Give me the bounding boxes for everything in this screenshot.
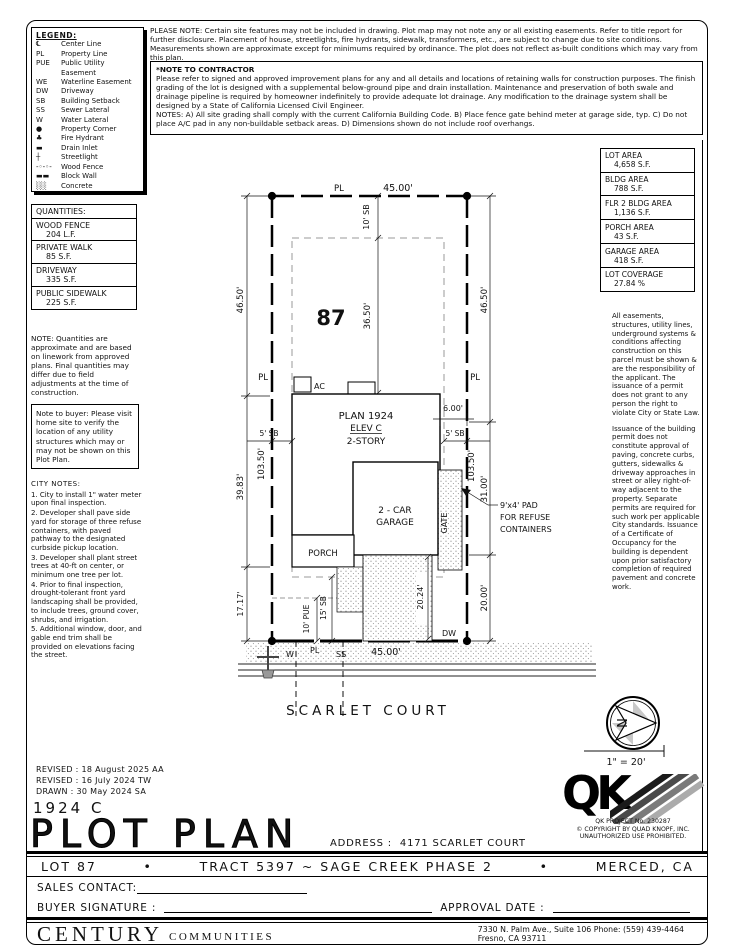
quantity-row: PRIVATE WALK85 S.F. (31, 240, 137, 264)
quantities-table: QUANTITIES: WOOD FENCE204 L.F. PRIVATE W… (31, 205, 137, 310)
ac-pad (294, 377, 311, 392)
footer-hairline (27, 876, 708, 877)
dim-street-sb: 15' SB (319, 596, 328, 620)
area-row: BLDG AREA788 S.F. (600, 172, 695, 197)
city-notes: CITY NOTES: 1. City to install 1" water … (31, 480, 143, 661)
plot-plan-page: LEGEND: ℄Center Line PLProperty Line PUE… (0, 0, 732, 948)
dim-left-mid: 39.83' (236, 474, 246, 501)
sales-contact-blank (137, 883, 307, 894)
revision-line: REVISED : 16 July 2024 TW (36, 775, 286, 786)
city-notes-title: CITY NOTES: (31, 480, 143, 489)
qk-copyright-line2: UNAUTHORIZED USE PROHIBITED. (558, 833, 708, 841)
legend-item: ℄Center Line (36, 40, 139, 49)
centerline-symbol: ℄ (36, 40, 61, 49)
legend-item: PLProperty Line (36, 50, 139, 59)
city-note-item: 4. Prior to final inspection, drought-to… (31, 581, 143, 625)
plan-story: 2-STORY (347, 437, 386, 447)
sales-contact-label: SALES CONTACT: (37, 882, 137, 894)
city-note-item: 3. Developer shall plant street trees at… (31, 554, 143, 580)
area-row: GARAGE AREA418 S.F. (600, 243, 695, 268)
legend-item: ░░Concrete (36, 182, 139, 191)
dim-right-total: 103.50' (467, 450, 477, 482)
block-wall-symbol: ▬▬ (36, 172, 61, 181)
qk-copyright-line1: © COPYRIGHT BY QUAD KNOPF, INC. (558, 826, 708, 834)
qk-copyright: QK PROJECT No. 230287 © COPYRIGHT BY QUA… (558, 818, 708, 841)
front-setback-dim (375, 193, 381, 396)
driveway-symbol: DW (36, 87, 61, 96)
legend-item: WEWaterline Easement (36, 78, 139, 87)
permit-note-paragraph: Issuance of the building permit does not… (612, 425, 700, 592)
permit-notes: All easements, structures, utility lines… (612, 312, 700, 599)
concrete-symbol: ░░ (36, 182, 61, 191)
buyer-signature-label: BUYER SIGNATURE : (37, 902, 156, 914)
legend-item: SSSewer Lateral (36, 106, 139, 115)
legend-item: WWater Lateral (36, 116, 139, 125)
gate-label: GATE (440, 513, 449, 534)
plan-name: PLAN 1924 (339, 411, 394, 422)
builder-name: CENTURY (37, 922, 163, 947)
ac-label: AC (314, 382, 325, 391)
please-note-text: PLEASE NOTE: Certain site features may n… (150, 27, 703, 63)
legend-item: DWDriveway (36, 87, 139, 96)
area-row: LOT AREA4,658 S.F. (600, 148, 695, 173)
builder-address-line1: 7330 N. Palm Ave., Suite 106 Phone: (559… (478, 925, 684, 935)
area-row: PORCH AREA43 S.F. (600, 219, 695, 244)
quantity-row: DRIVEWAY335 S.F. (31, 263, 137, 287)
refuse-label-1: 9'x4' PAD (500, 501, 538, 510)
legend-item: ┼Streetlight (36, 153, 139, 162)
dim-pue: 10' PUE (302, 604, 311, 633)
note-to-contractor-box: *NOTE TO CONTRACTOR Please refer to sign… (150, 61, 703, 135)
builder-address-line2: Fresno, CA 93711 (478, 934, 684, 944)
pl-label-bottom: PL (310, 646, 320, 655)
revision-line: REVISED : 18 August 2025 AA (36, 764, 286, 775)
address-label: ADDRESS : (330, 838, 392, 849)
dim-driveway: 20.24' (416, 584, 425, 609)
dim-front-sb: 10' SB (362, 204, 371, 230)
north-arrow-and-scale: N 1" = 20' (580, 690, 710, 775)
lot-label: LOT 87 (41, 859, 97, 874)
dim-bottom-width: 45.00' (371, 647, 401, 658)
property-corner (268, 192, 275, 199)
site-plan-drawing: 46.50' 39.83' 17.17' 103.50' 46.50' 31.0… (230, 140, 602, 720)
address-value: 4171 SCARLET COURT (400, 838, 526, 849)
left-dimension-chain (241, 193, 270, 644)
sheet-title-text: PLOT PLAN (30, 812, 300, 856)
legend-title: LEGEND: (36, 31, 139, 40)
tract-label: TRACT 5397 ~ SAGE CREEK PHASE 2 (200, 859, 493, 874)
dim-side-offset: 6.00' (443, 404, 463, 413)
legend-item: ●Property Corner (36, 125, 139, 134)
contractor-note-list: NOTES: A) All site grading shall comply … (156, 110, 697, 128)
property-corner (463, 637, 470, 644)
wood-fence-symbol: -◦-◦- (36, 163, 61, 172)
builder-row: CENTURY COMMUNITIES 7330 N. Palm Ave., S… (27, 923, 708, 945)
garage-label-2: GARAGE (376, 518, 414, 528)
dim-to-house: 36.50' (363, 303, 373, 330)
property-line-symbol: PL (36, 50, 61, 59)
legend-item: SBBuilding Setback (36, 97, 139, 106)
garage-label-1: 2 - CAR (378, 506, 411, 516)
approval-date-blank (553, 902, 691, 913)
private-walk (337, 567, 363, 612)
plan-elev: ELEV C (350, 424, 382, 434)
bullet: • (540, 859, 549, 874)
approval-date-label: APPROVAL DATE : (440, 902, 544, 914)
quantities-note: NOTE: Quantities are approximate and are… (31, 334, 139, 397)
street-name: SCARLET COURT (286, 703, 450, 719)
legend-item: ♣Fire Hydrant (36, 134, 139, 143)
driveway-label: DW (442, 629, 456, 638)
dim-sb-right: 5' SB (445, 429, 464, 438)
contractor-note-title: *NOTE TO CONTRACTOR (156, 65, 697, 74)
lot-tract-row: LOT 87 • TRACT 5397 ~ SAGE CREEK PHASE 2… (27, 857, 708, 876)
city-note-item: 2. Developer shall pave side yard for st… (31, 509, 143, 553)
house-bump (348, 382, 375, 394)
pl-label-top: PL (334, 184, 344, 194)
area-row: LOT COVERAGE27.84 % (600, 267, 695, 292)
legend-item: -◦-◦-Wood Fence (36, 163, 139, 172)
legend-item: ▬▬Block Wall (36, 172, 139, 181)
buyer-note-box: Note to buyer: Please visit home site to… (31, 404, 139, 469)
builder-address: 7330 N. Palm Ave., Suite 106 Phone: (559… (478, 925, 698, 944)
sewer-lateral-label: SS (336, 650, 346, 659)
qk-project-number: QK PROJECT No. 230287 (558, 818, 708, 826)
right-dimension-chain (469, 193, 496, 644)
sidewalk-concrete (238, 643, 596, 676)
dim-right-lower: 20.00' (480, 585, 490, 612)
pue-symbol: PUE (36, 59, 61, 78)
legend-item: PUEPublic Utility Easement (36, 59, 139, 78)
qk-logo-block: QK QK PROJECT No. 230287 © COPYRIGHT BY … (558, 774, 708, 848)
dim-right-upper: 46.50' (480, 287, 490, 314)
quantity-row: WOOD FENCE204 L.F. (31, 218, 137, 242)
revision-block: REVISED : 18 August 2025 AA REVISED : 16… (36, 764, 286, 797)
address-line: ADDRESS : 4171 SCARLET COURT (330, 838, 526, 849)
city-note-item: 1. City to install 1" water meter upon f… (31, 491, 143, 508)
sales-contact-row: SALES CONTACT: (27, 878, 708, 898)
dim-top-width: 45.00' (383, 183, 413, 194)
dim-sb-left: 5' SB (259, 429, 278, 438)
permit-note-paragraph: All easements, structures, utility lines… (612, 312, 700, 418)
buyer-signature-row: BUYER SIGNATURE : APPROVAL DATE : (27, 898, 708, 917)
qk-logo-stripes (610, 774, 710, 824)
lot-number: 87 (316, 306, 345, 330)
revision-line: DRAWN : 30 May 2024 SA (36, 786, 286, 797)
area-row: FLR 2 BLDG AREA1,136 S.F. (600, 195, 695, 220)
pl-label-left: PL (258, 373, 268, 383)
streetlight-icon: ┼ (36, 153, 61, 162)
city-note-item: 5. Additional window, door, and gable en… (31, 625, 143, 660)
fire-hydrant-icon: ♣ (36, 134, 61, 143)
property-corner (463, 192, 470, 199)
quantities-header: QUANTITIES: (31, 204, 137, 219)
building-setback-symbol: SB (36, 97, 61, 106)
legend-box: LEGEND: ℄Center Line PLProperty Line PUE… (31, 27, 144, 192)
city-label: MERCED, CA (596, 859, 694, 874)
legend-item: ▬Drain Inlet (36, 144, 139, 153)
buyer-signature-blank (164, 902, 432, 913)
sewer-lateral-symbol: SS (36, 106, 61, 115)
property-corner-icon: ● (36, 125, 61, 134)
pl-label-right: PL (470, 373, 480, 383)
porch-label: PORCH (308, 549, 338, 559)
water-lateral-label: W (286, 650, 294, 659)
dim-left-upper: 46.50' (236, 287, 246, 314)
builder-name-sub: COMMUNITIES (169, 925, 274, 943)
area-table: LOT AREA4,658 S.F. BLDG AREA788 S.F. FLR… (600, 149, 695, 292)
refuse-label-3: CONTAINERS (500, 525, 552, 534)
drain-inlet-icon: ▬ (36, 144, 61, 153)
dim-left-total: 103.50' (257, 448, 267, 480)
dim-left-lower: 17.17' (236, 591, 245, 616)
north-letter: N (613, 718, 628, 728)
quantity-row: PUBLIC SIDEWALK225 S.F. (31, 286, 137, 310)
dim-right-mid: 31.00' (480, 476, 490, 503)
refuse-label-2: FOR REFUSE (500, 513, 550, 522)
bullet: • (144, 859, 153, 874)
water-lateral-symbol: W (36, 116, 61, 125)
property-corner (268, 637, 275, 644)
contractor-note-body: Please refer to signed and approved impr… (156, 74, 697, 110)
waterline-easement-symbol: WE (36, 78, 61, 87)
